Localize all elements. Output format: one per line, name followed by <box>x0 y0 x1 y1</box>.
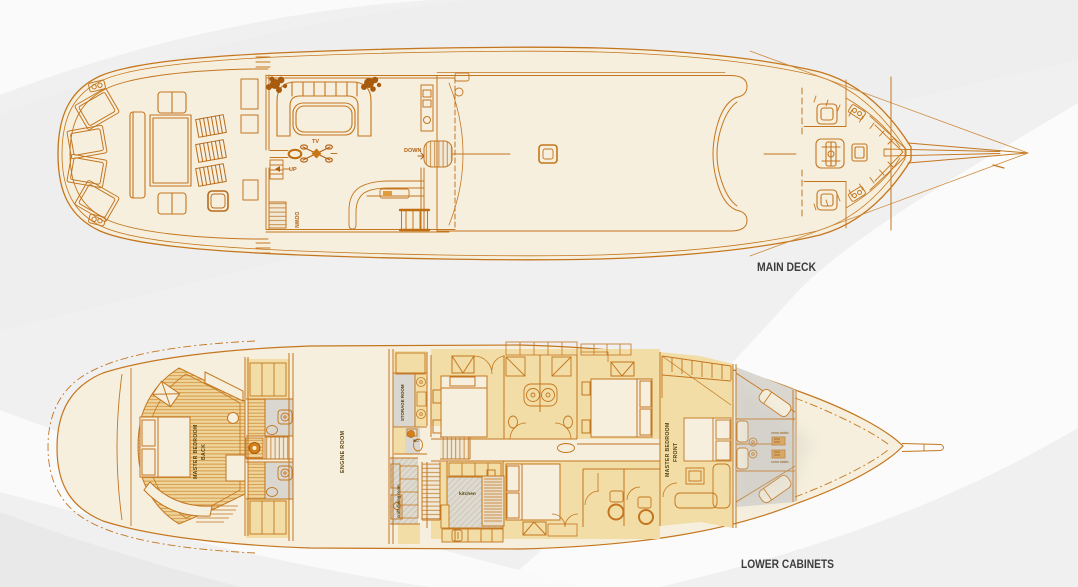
svg-text:DOWN: DOWN <box>293 212 299 228</box>
svg-text:DOWN: DOWN <box>404 148 421 154</box>
svg-text:MASTER BEDROOM: MASTER BEDROOM <box>193 424 199 479</box>
svg-text:LOWER CABINETS: LOWER CABINETS <box>741 557 834 571</box>
svg-text:MASTER BEDROOM: MASTER BEDROOM <box>665 422 671 477</box>
svg-text:UP: UP <box>289 167 297 173</box>
svg-text:FRONT: FRONT <box>673 442 679 462</box>
svg-text:TV: TV <box>312 139 319 145</box>
svg-text:BACK: BACK <box>201 444 207 460</box>
svg-text:WC: WC <box>413 439 419 443</box>
svg-text:MAIN DECK: MAIN DECK <box>757 260 816 274</box>
svg-text:kitchen: kitchen <box>459 491 476 497</box>
svg-text:STORAGE ROOM: STORAGE ROOM <box>400 384 405 421</box>
svg-text:ENGINE ROOM: ENGINE ROOM <box>340 431 346 473</box>
